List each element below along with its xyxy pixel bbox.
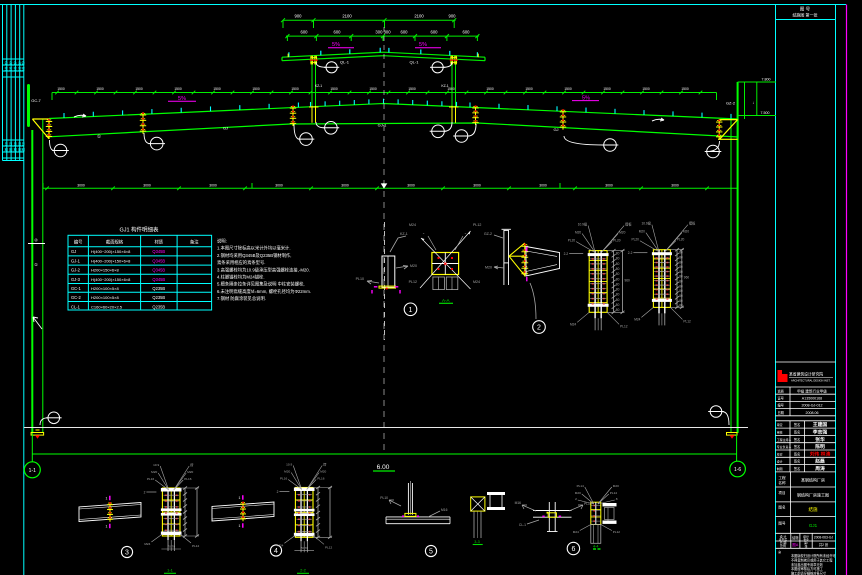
svg-text:80: 80 <box>616 277 620 281</box>
svg-text:共2 张: 共2 张 <box>819 542 829 547</box>
svg-text:1500: 1500 <box>330 87 338 91</box>
svg-text:3000: 3000 <box>341 184 349 188</box>
svg-text:1500: 1500 <box>291 87 299 91</box>
svg-text:1500: 1500 <box>642 87 650 91</box>
svg-text:M24: M24 <box>144 542 150 546</box>
svg-text:签名: 签名 <box>794 444 800 449</box>
svg-text:600: 600 <box>301 30 309 35</box>
svg-text:摺: 摺 <box>323 462 326 467</box>
svg-text:6.00: 6.00 <box>377 464 390 471</box>
svg-text:70 70: 70 70 <box>167 545 175 549</box>
svg-text:Q345B: Q345B <box>152 249 165 254</box>
svg-text:80: 80 <box>616 298 620 302</box>
svg-text:设计: 设计 <box>777 459 783 464</box>
svg-text:PL12: PL12 <box>473 223 481 227</box>
svg-text:2100: 2100 <box>342 14 352 19</box>
svg-text:钢结构厂房施工图: 钢结构厂房施工图 <box>797 491 829 497</box>
svg-text:3000: 3000 <box>275 184 283 188</box>
svg-text:80: 80 <box>616 308 620 312</box>
svg-text:2008.06: 2008.06 <box>806 411 819 415</box>
svg-text:H(400~200)×150×6×8: H(400~200)×150×6×8 <box>91 258 131 263</box>
svg-text:GJ-1: GJ-1 <box>71 258 81 263</box>
svg-text:Q345B: Q345B <box>152 258 165 263</box>
svg-text:截面规格: 截面规格 <box>106 239 124 246</box>
svg-text:1: 1 <box>409 307 413 314</box>
svg-text:4: 4 <box>274 548 278 555</box>
svg-text:600: 600 <box>463 30 471 35</box>
svg-text:3.高强螺栓均为10.9级承压型高强螺栓连接,-M20.: 3.高强螺栓均为10.9级承压型高强螺栓连接,-M20. <box>217 266 310 273</box>
svg-text:M16: M16 <box>441 508 448 512</box>
svg-text:1: 1 <box>106 525 108 529</box>
svg-text:M20: M20 <box>320 470 326 474</box>
svg-text:②: ② <box>34 239 38 243</box>
svg-text:GJ-2: GJ-2 <box>71 268 81 273</box>
svg-text:M24: M24 <box>573 530 579 534</box>
svg-text:1500: 1500 <box>486 87 494 91</box>
svg-text:图名: 图名 <box>778 505 786 510</box>
svg-text:名称: 名称 <box>778 480 786 485</box>
svg-text:日: 日 <box>14 142 17 146</box>
svg-text:张华: 张华 <box>815 436 825 443</box>
svg-text:GZ-2: GZ-2 <box>726 100 736 105</box>
svg-text:M24: M24 <box>473 280 480 284</box>
svg-text:PL10: PL10 <box>380 496 388 500</box>
svg-text:2: 2 <box>537 325 541 332</box>
svg-text:80: 80 <box>616 267 620 271</box>
svg-text:某钢结构厂房: 某钢结构厂房 <box>801 476 825 482</box>
svg-text:审核: 审核 <box>777 430 783 435</box>
svg-text:M24: M24 <box>570 322 576 326</box>
svg-text:PL12: PL12 <box>613 530 621 534</box>
svg-text:6: 6 <box>571 546 575 553</box>
svg-text:↓: ↓ <box>752 100 754 105</box>
svg-text:M24: M24 <box>634 317 640 321</box>
svg-text:PL20: PL20 <box>613 239 621 243</box>
svg-text:ARCHITECTURAL DESIGN INST.: ARCHITECTURAL DESIGN INST. <box>791 379 831 383</box>
svg-text:资质: 资质 <box>778 388 785 393</box>
svg-text:H200×100×5×8: H200×100×5×8 <box>91 295 119 300</box>
svg-text:PL12: PL12 <box>409 280 417 284</box>
svg-text:1-1: 1-1 <box>29 468 36 474</box>
svg-text:Q235B: Q235B <box>152 295 165 300</box>
svg-text:10.9: 10.9 <box>286 463 292 467</box>
svg-text:70 70: 70 70 <box>300 546 308 550</box>
svg-text:80: 80 <box>616 293 620 297</box>
svg-text:PL12: PL12 <box>192 544 200 548</box>
svg-text:M20: M20 <box>619 231 625 235</box>
svg-text:PL12: PL12 <box>620 324 628 328</box>
svg-text:80: 80 <box>679 299 683 303</box>
svg-text:1500: 1500 <box>96 87 104 91</box>
svg-text:李志强: 李志强 <box>812 429 828 436</box>
svg-text:H200×100×5×8: H200×100×5×8 <box>91 286 119 291</box>
svg-text:甲级 建筑行业甲级: 甲级 建筑行业甲级 <box>797 388 827 393</box>
svg-text:1500: 1500 <box>57 87 65 91</box>
svg-text:80: 80 <box>679 251 683 255</box>
svg-text:CL-1: CL-1 <box>519 523 526 527</box>
svg-text:日: 日 <box>9 142 12 146</box>
svg-text:校对: 校对 <box>777 451 783 456</box>
svg-text:1500: 1500 <box>213 87 221 91</box>
svg-text:M20: M20 <box>575 491 581 495</box>
svg-text:80: 80 <box>679 289 683 293</box>
svg-text:M20: M20 <box>151 470 157 474</box>
svg-text:10.9级: 10.9级 <box>641 221 651 226</box>
svg-text:960: 960 <box>684 276 690 280</box>
svg-text:1-6: 1-6 <box>734 467 741 473</box>
svg-text:签名: 签名 <box>794 459 800 464</box>
svg-text:PL20: PL20 <box>631 238 639 242</box>
svg-text:M24: M24 <box>409 223 416 227</box>
svg-text:图A: 图A <box>792 543 799 547</box>
svg-text:1.本图尺寸除标高以米计外均以毫米计.: 1.本图尺寸除标高以米计外均以毫米计. <box>217 245 291 252</box>
svg-text:3000: 3000 <box>539 184 547 188</box>
svg-text:2: 2 <box>144 491 146 495</box>
svg-text:结施: 结施 <box>809 506 818 513</box>
svg-text:GC-1: GC-1 <box>71 286 82 291</box>
svg-text:1: 1 <box>106 497 108 501</box>
svg-text:A135000168: A135000168 <box>802 397 822 401</box>
svg-text:未加盖出图专用章无效: 未加盖出图专用章无效 <box>791 562 824 567</box>
svg-text:M20: M20 <box>284 470 290 474</box>
svg-text:Q345B: Q345B <box>152 277 165 282</box>
svg-text:3000: 3000 <box>77 184 85 188</box>
svg-text:结施图 第一张: 结施图 第一张 <box>792 12 817 18</box>
svg-text:1500: 1500 <box>525 87 533 91</box>
svg-text:7.500: 7.500 <box>761 111 770 115</box>
svg-text:1500: 1500 <box>564 87 572 91</box>
svg-text:300 300: 300 300 <box>375 30 391 35</box>
svg-text:M20: M20 <box>575 231 581 235</box>
svg-text:1500: 1500 <box>603 87 611 91</box>
svg-text:CL-1: CL-1 <box>71 304 81 309</box>
svg-text:PL16: PL16 <box>184 477 192 481</box>
svg-text:PL14: PL14 <box>610 491 618 495</box>
svg-text:3000: 3000 <box>671 184 679 188</box>
svg-text:3-3: 3-3 <box>474 540 480 544</box>
svg-text:2-2: 2-2 <box>564 252 569 256</box>
svg-text:GJ-3: GJ-3 <box>71 277 81 282</box>
svg-text:本图经审核后方可施工: 本图经审核后方可施工 <box>791 566 824 571</box>
svg-text:签名: 签名 <box>794 437 800 442</box>
svg-text:KZ-1: KZ-1 <box>400 232 408 236</box>
svg-text:QL-1: QL-1 <box>410 60 420 65</box>
svg-text:某省建筑设计研究院: 某省建筑设计研究院 <box>789 372 823 377</box>
svg-text:1500: 1500 <box>252 87 260 91</box>
svg-text:Q345B: Q345B <box>152 268 165 273</box>
svg-text:摺: 摺 <box>190 462 193 467</box>
svg-text:C160×60×20×2.5: C160×60×20×2.5 <box>91 304 123 309</box>
svg-text:80: 80 <box>679 284 683 288</box>
svg-text:编号: 编号 <box>778 403 784 408</box>
svg-text:刘伟 林涛: 刘伟 林涛 <box>810 450 831 457</box>
svg-text:M20: M20 <box>683 230 689 234</box>
svg-text:PL14: PL14 <box>577 484 585 488</box>
svg-text:600: 600 <box>401 30 409 35</box>
svg-text:材质: 材质 <box>155 239 164 246</box>
svg-text:M24: M24 <box>277 543 283 547</box>
svg-text:PL12: PL12 <box>325 545 333 549</box>
svg-text:960: 960 <box>625 278 631 282</box>
svg-text:编号: 编号 <box>74 239 83 246</box>
svg-text:说明:: 说明: <box>217 238 227 245</box>
svg-text:Q235B: Q235B <box>152 286 165 291</box>
svg-text:GJ1 构件明细表: GJ1 构件明细表 <box>119 225 159 233</box>
svg-text:图号: 图号 <box>778 520 786 525</box>
svg-text:600: 600 <box>334 30 342 35</box>
svg-text:2: 2 <box>277 490 279 494</box>
svg-text:3000: 3000 <box>473 184 481 188</box>
svg-text:①: ① <box>34 262 38 267</box>
svg-text:工程主持人: 工程主持人 <box>777 437 792 442</box>
svg-text:签名: 签名 <box>794 466 800 471</box>
svg-text:80: 80 <box>616 257 620 261</box>
svg-text:PL16: PL16 <box>317 477 325 481</box>
svg-text:GJ-1: GJ-1 <box>378 123 387 128</box>
svg-text:4-4: 4-4 <box>593 545 599 549</box>
svg-text:7.钢材 防腐涂装见总说明.: 7.钢材 防腐涂装见总说明. <box>217 295 266 302</box>
svg-text:PL16: PL16 <box>280 477 288 481</box>
svg-text:日期: 日期 <box>778 410 784 415</box>
svg-text:日: 日 <box>22 142 25 146</box>
svg-text:5.檀条隔条拉条详见图集及说明 中柱安装螺栓,: 5.檀条隔条拉条详见图集及说明 中柱安装螺栓, <box>217 281 305 288</box>
svg-text:80: 80 <box>679 256 683 260</box>
svg-text:8: 8 <box>616 497 618 501</box>
svg-text:80: 80 <box>679 270 683 274</box>
svg-text:1500: 1500 <box>135 87 143 91</box>
svg-text:H200×150×6×8: H200×150×6×8 <box>91 268 119 273</box>
svg-text:证号: 证号 <box>778 396 784 401</box>
svg-text:GC-2: GC-2 <box>71 295 82 300</box>
svg-text:张: 张 <box>805 544 808 548</box>
svg-text:80: 80 <box>616 252 620 256</box>
svg-text:陈明: 陈明 <box>815 443 825 450</box>
svg-text:M20: M20 <box>187 470 193 474</box>
svg-text:80: 80 <box>679 280 683 284</box>
svg-text:80: 80 <box>679 294 683 298</box>
svg-text:2008-063-GJ: 2008-063-GJ <box>814 536 834 540</box>
svg-text:M20: M20 <box>613 484 619 488</box>
svg-text:900: 900 <box>449 14 457 19</box>
svg-text:1500: 1500 <box>369 87 377 91</box>
svg-text:PL20: PL20 <box>568 239 576 243</box>
svg-text:80: 80 <box>616 282 620 286</box>
svg-text:80: 80 <box>616 303 620 307</box>
svg-text:GZ-2: GZ-2 <box>484 232 492 236</box>
svg-text:⌄: ⌄ <box>422 231 425 235</box>
svg-text:QL-1: QL-1 <box>340 60 350 65</box>
svg-text:专业负责人: 专业负责人 <box>777 444 792 449</box>
svg-text:签名: 签名 <box>794 422 800 427</box>
svg-text:1500: 1500 <box>174 87 182 91</box>
svg-text:PL12: PL12 <box>683 319 691 323</box>
svg-text:80: 80 <box>616 272 620 276</box>
svg-text:日: 日 <box>5 142 8 146</box>
svg-text:2008-GJ-012: 2008-GJ-012 <box>802 404 823 408</box>
svg-text:M20: M20 <box>485 266 492 270</box>
svg-text:1-1: 1-1 <box>167 568 174 573</box>
svg-text:M20: M20 <box>410 264 417 268</box>
svg-text:6.未注明焉缝高度hf=6mm, 螺栓孔径均为Φ22mm.: 6.未注明焉缝高度hf=6mm, 螺栓孔径均为Φ22mm. <box>217 288 311 295</box>
svg-text:Q235B: Q235B <box>152 304 165 309</box>
svg-text:3000: 3000 <box>605 184 613 188</box>
svg-text:不得复制拷贝或用于其它工程: 不得复制拷贝或用于其它工程 <box>791 558 833 563</box>
svg-text:审定: 审定 <box>777 422 783 427</box>
svg-text:H(400~200)×150×6×8: H(400~200)×150×6×8 <box>91 277 131 282</box>
svg-text:80: 80 <box>679 260 683 264</box>
svg-text:4.柱脚锚栓均为M24锚栓.: 4.柱脚锚栓均为M24锚栓. <box>217 274 265 281</box>
svg-text:H(400~200)×150×6×8: H(400~200)×150×6×8 <box>91 249 131 254</box>
svg-text:摺板: 摺板 <box>625 222 632 227</box>
svg-text:7.800: 7.800 <box>762 78 771 82</box>
svg-text:2100: 2100 <box>414 14 424 19</box>
svg-text:GJ: GJ <box>71 249 76 254</box>
svg-text:备注: 备注 <box>190 239 199 246</box>
svg-text:※: ※ <box>778 550 781 555</box>
svg-text:3: 3 <box>125 550 129 557</box>
svg-text:2-2: 2-2 <box>300 568 307 573</box>
svg-text:80: 80 <box>616 262 620 266</box>
svg-text:焉条采用相应的焉条型号.: 焉条采用相应的焉条型号. <box>217 259 265 266</box>
svg-text:80: 80 <box>679 265 683 269</box>
svg-text:1500: 1500 <box>447 87 455 91</box>
svg-text:本图版权归设计院所有未经许可: 本图版权归设计院所有未经许可 <box>791 553 836 558</box>
svg-text:结施: 结施 <box>792 535 799 540</box>
svg-text:PL20: PL20 <box>677 238 685 242</box>
svg-text:GJ1: GJ1 <box>809 523 818 528</box>
svg-text:5%: 5% <box>332 42 340 48</box>
svg-text:M16: M16 <box>515 501 522 505</box>
svg-text:项目: 项目 <box>778 490 785 495</box>
svg-text:工程: 工程 <box>778 475 786 480</box>
svg-text:1500: 1500 <box>408 87 416 91</box>
svg-text:1: 1 <box>239 496 241 500</box>
svg-text:KZ-1: KZ-1 <box>315 84 322 88</box>
svg-text:3000: 3000 <box>209 184 217 188</box>
svg-text:900: 900 <box>295 14 303 19</box>
svg-text:制图: 制图 <box>777 466 783 471</box>
svg-text:3000: 3000 <box>143 184 151 188</box>
svg-text:1500: 1500 <box>681 87 689 91</box>
svg-text:签名: 签名 <box>794 451 800 456</box>
svg-text:2.钢材均采用Q345B及Q235B钢材制作,: 2.钢材均采用Q345B及Q235B钢材制作, <box>217 252 292 259</box>
svg-text:赵磊: 赵磊 <box>814 458 825 465</box>
svg-text:M20: M20 <box>639 230 645 234</box>
svg-text:2: 2 <box>575 497 577 501</box>
svg-text:600: 600 <box>431 30 439 35</box>
svg-text:GC-7: GC-7 <box>31 98 41 103</box>
svg-text:10.9级: 10.9级 <box>578 222 588 227</box>
svg-text:10.9: 10.9 <box>153 463 159 467</box>
svg-text:GJ: GJ <box>223 126 228 131</box>
svg-text:签名: 签名 <box>794 430 800 435</box>
svg-text:80: 80 <box>616 288 620 292</box>
svg-text:王建国: 王建国 <box>813 421 828 428</box>
svg-text:A-A: A-A <box>442 298 450 303</box>
svg-text:3000: 3000 <box>407 184 415 188</box>
svg-text:PL10: PL10 <box>356 277 364 281</box>
svg-text:PL16: PL16 <box>147 477 155 481</box>
svg-text:1: 1 <box>239 524 241 528</box>
svg-text:⌄: ⌄ <box>464 231 467 235</box>
svg-text:周涛: 周涛 <box>815 465 825 472</box>
svg-text:5%: 5% <box>419 42 427 48</box>
svg-text:摺板: 摺板 <box>689 221 696 226</box>
svg-text:2-2: 2-2 <box>628 251 633 255</box>
svg-text:比例: 比例 <box>780 544 786 548</box>
svg-text:80: 80 <box>679 275 683 279</box>
svg-text:GJ: GJ <box>553 127 558 132</box>
svg-text:5: 5 <box>429 549 433 556</box>
svg-text:施工前请仔细核对各尺寸: 施工前请仔细核对各尺寸 <box>791 570 827 575</box>
